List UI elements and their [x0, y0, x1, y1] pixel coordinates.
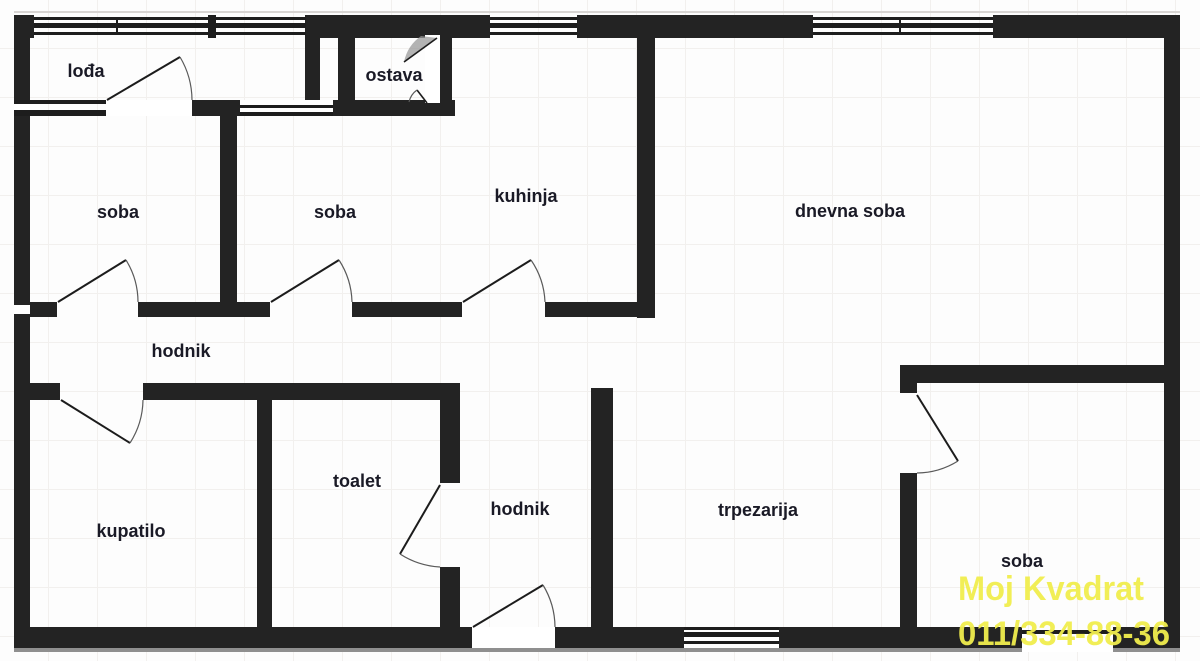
room-label-bedroom1: soba [97, 202, 140, 222]
wall-hall-top-3 [352, 302, 462, 317]
wall-toilet-right-lower [440, 567, 460, 627]
room-label-storage: ostava [365, 65, 423, 85]
wall-top-mid-right [577, 15, 813, 38]
wall-loggia-bottom-seg [192, 100, 240, 116]
room-label-bedroom2: soba [314, 202, 357, 222]
wall-bottom-mid1 [555, 627, 684, 648]
room-label-dining-room: trpezarija [718, 500, 799, 520]
window-mullion-thick [208, 15, 216, 38]
floor-plan-svg: lođa ostava soba soba kuhinja dnevna sob… [0, 0, 1200, 661]
watermark-line1: Moj Kvadrat [958, 570, 1144, 608]
wall-hall-bottom-2 [143, 383, 460, 400]
wall-bedroom3-left-upper [900, 383, 917, 393]
wall-hall-top-1 [30, 302, 57, 317]
wall-storage-right [440, 38, 452, 103]
wall-kitchen-right [637, 15, 655, 318]
floor-plan-canvas: lođa ostava soba soba kuhinja dnevna sob… [0, 0, 1200, 661]
room-label-kitchen: kuhinja [494, 186, 558, 206]
wall-hall-top-4 [545, 302, 655, 317]
wall-toilet-right-upper [440, 400, 460, 483]
wall-bedroom3-left-lower [900, 473, 917, 627]
window-loggia [34, 15, 306, 38]
wall-bedroom-divider [220, 115, 237, 302]
wall-hall-bottom-1 [30, 383, 60, 400]
wall-loggia-right [305, 15, 320, 100]
room-label-bathroom: kupatilo [96, 521, 165, 541]
window-bedroom2-loggia [240, 100, 333, 116]
watermark-line2: 011/334-88-36 [958, 615, 1170, 653]
room-label-hallway-upper: hodnik [152, 341, 212, 361]
room-label-hallway-lower: hodnik [491, 499, 551, 519]
wall-hall-dining-stub [591, 388, 613, 627]
wall-bedroom3-top [900, 365, 1164, 383]
wall-bath-toilet-divider [257, 400, 272, 627]
wall-hall-top-2 [138, 302, 270, 317]
window-kitchen [490, 17, 577, 35]
wall-right-outer [1164, 15, 1180, 648]
wall-top-right [993, 15, 1180, 38]
wall-bottom-left [14, 627, 472, 648]
wall-storage-left [338, 15, 355, 103]
window-dining-room [684, 627, 779, 648]
room-label-living-room: dnevna soba [795, 201, 906, 221]
window-mullion [899, 17, 901, 35]
wall-top-mid-left [306, 15, 490, 38]
room-label-loggia: lođa [67, 61, 105, 81]
window-living-room [813, 17, 993, 35]
window-mullion [116, 17, 118, 35]
room-label-toilet: toalet [333, 471, 381, 491]
left-wall-notch-2 [14, 305, 30, 314]
left-wall-notch-1 [14, 104, 30, 111]
room-label-bedroom3: soba [1001, 551, 1044, 571]
top-outline-shadow [14, 11, 1180, 13]
